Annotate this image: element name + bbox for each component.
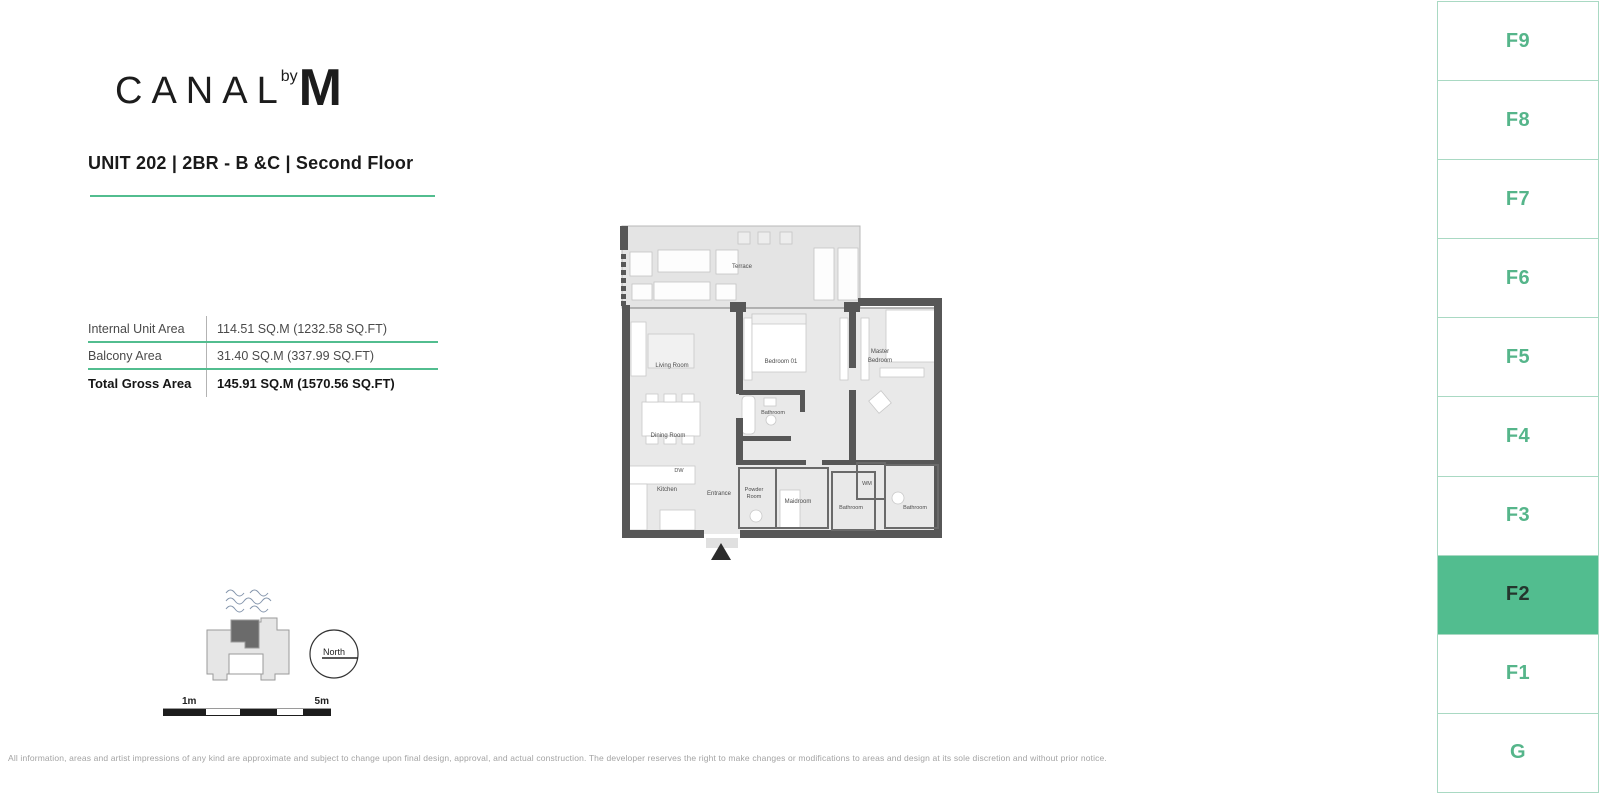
- room-label-terrace: Terrace: [732, 264, 753, 270]
- floor-plan-drawing: Terrace Living Room Bedroom 01 Master Be…: [618, 222, 948, 562]
- floor-tab-f4[interactable]: F4: [1438, 397, 1598, 476]
- building-locator: [203, 614, 293, 684]
- logo-by-text: by: [281, 68, 298, 85]
- logo-m-mark: M: [299, 59, 342, 117]
- row-label: Balcony Area: [88, 343, 206, 368]
- room-label-wm: WM: [862, 481, 872, 487]
- room-label-master-1: Master: [871, 349, 889, 355]
- floor-tab-f3[interactable]: F3: [1438, 477, 1598, 556]
- table-row-balcony-area: Balcony Area 31.40 SQ.M (337.99 SQ.FT): [88, 343, 438, 370]
- floor-tab-f6[interactable]: F6: [1438, 239, 1598, 318]
- table-row-total-area: Total Gross Area 145.91 SQ.M (1570.56 SQ…: [88, 370, 438, 397]
- page-title: UNIT 202 | 2BR - B &C | Second Floor: [88, 153, 413, 174]
- disclaimer-text: All information, areas and artist impres…: [8, 753, 1107, 763]
- brand-logo: CANALbyM: [115, 58, 342, 118]
- room-label-dw: DW: [674, 468, 684, 474]
- logo-canal-text: CANAL: [115, 70, 287, 112]
- room-label-maidroom: Maidroom: [785, 499, 812, 505]
- floor-tab-f8[interactable]: F8: [1438, 81, 1598, 160]
- floor-tab-f1[interactable]: F1: [1438, 635, 1598, 714]
- room-label-master-2: Bedroom: [868, 358, 892, 364]
- room-label-kitchen: Kitchen: [657, 487, 677, 493]
- room-label-bathroom-03: Bathroom: [903, 505, 927, 511]
- room-label-powder-1: Powder: [745, 487, 764, 493]
- floorplan-page: CANALbyM UNIT 202 | 2BR - B &C | Second …: [0, 0, 1600, 800]
- north-label: North: [323, 647, 345, 657]
- room-label-bedroom-01: Bedroom 01: [765, 359, 798, 365]
- north-indicator: North: [308, 628, 360, 680]
- floor-tab-f2[interactable]: F2: [1438, 556, 1598, 635]
- row-label: Internal Unit Area: [88, 316, 206, 341]
- row-value: 145.91 SQ.M (1570.56 SQ.FT): [206, 370, 438, 397]
- row-value: 114.51 SQ.M (1232.58 SQ.FT): [206, 316, 438, 341]
- room-label-powder-2: Room: [747, 494, 762, 500]
- row-value: 31.40 SQ.M (337.99 SQ.FT): [206, 343, 438, 368]
- room-label-entrance: Entrance: [707, 491, 732, 497]
- floor-tab-f7[interactable]: F7: [1438, 160, 1598, 239]
- room-label-bathroom-02: Bathroom: [839, 505, 863, 511]
- floor-selector: F9 F8 F7 F6 F5 F4 F3 F2 F1 G: [1437, 1, 1599, 793]
- floor-tab-f9[interactable]: F9: [1438, 2, 1598, 81]
- room-label-bathroom-01: Bathroom: [761, 410, 785, 416]
- scale-label-5m: 5m: [315, 696, 329, 707]
- row-label: Total Gross Area: [88, 370, 206, 397]
- scale-label-1m: 1m: [182, 696, 196, 707]
- table-row-internal-area: Internal Unit Area 114.51 SQ.M (1232.58 …: [88, 316, 438, 343]
- water-waves-icon: [224, 588, 276, 614]
- scale-strip: [163, 709, 331, 716]
- area-table: Internal Unit Area 114.51 SQ.M (1232.58 …: [88, 316, 438, 397]
- room-label-living-room: Living Room: [655, 363, 688, 369]
- floor-tab-f5[interactable]: F5: [1438, 318, 1598, 397]
- room-label-dining-room: Dining Room: [651, 433, 686, 439]
- title-underline: [90, 195, 435, 197]
- floor-plan: Terrace Living Room Bedroom 01 Master Be…: [618, 222, 948, 562]
- floor-tab-g[interactable]: G: [1438, 714, 1598, 792]
- scale-bar: 1m 5m: [163, 696, 331, 716]
